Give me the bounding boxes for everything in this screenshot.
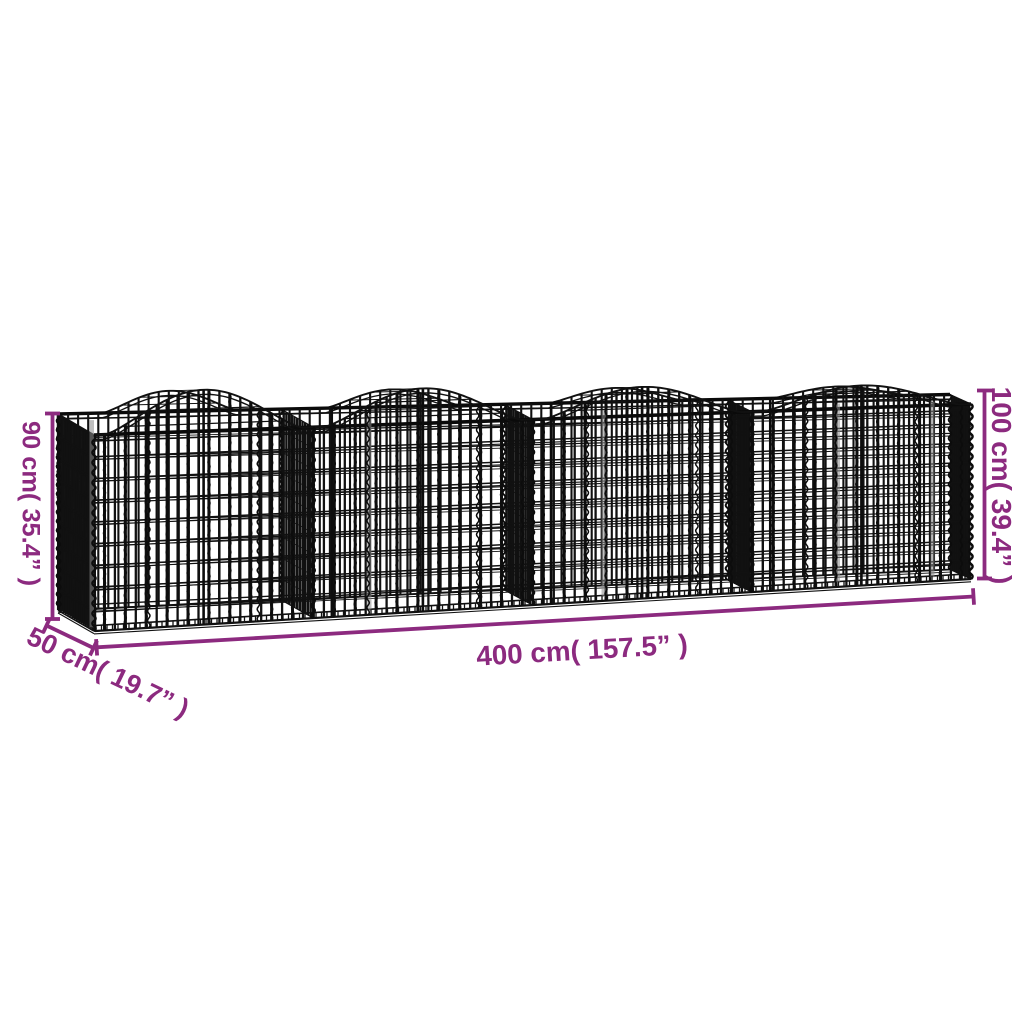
svg-text:90 cm( 35.4” ): 90 cm( 35.4” )	[17, 421, 45, 586]
svg-text:100 cm( 39.4” ): 100 cm( 39.4” )	[986, 387, 1017, 585]
